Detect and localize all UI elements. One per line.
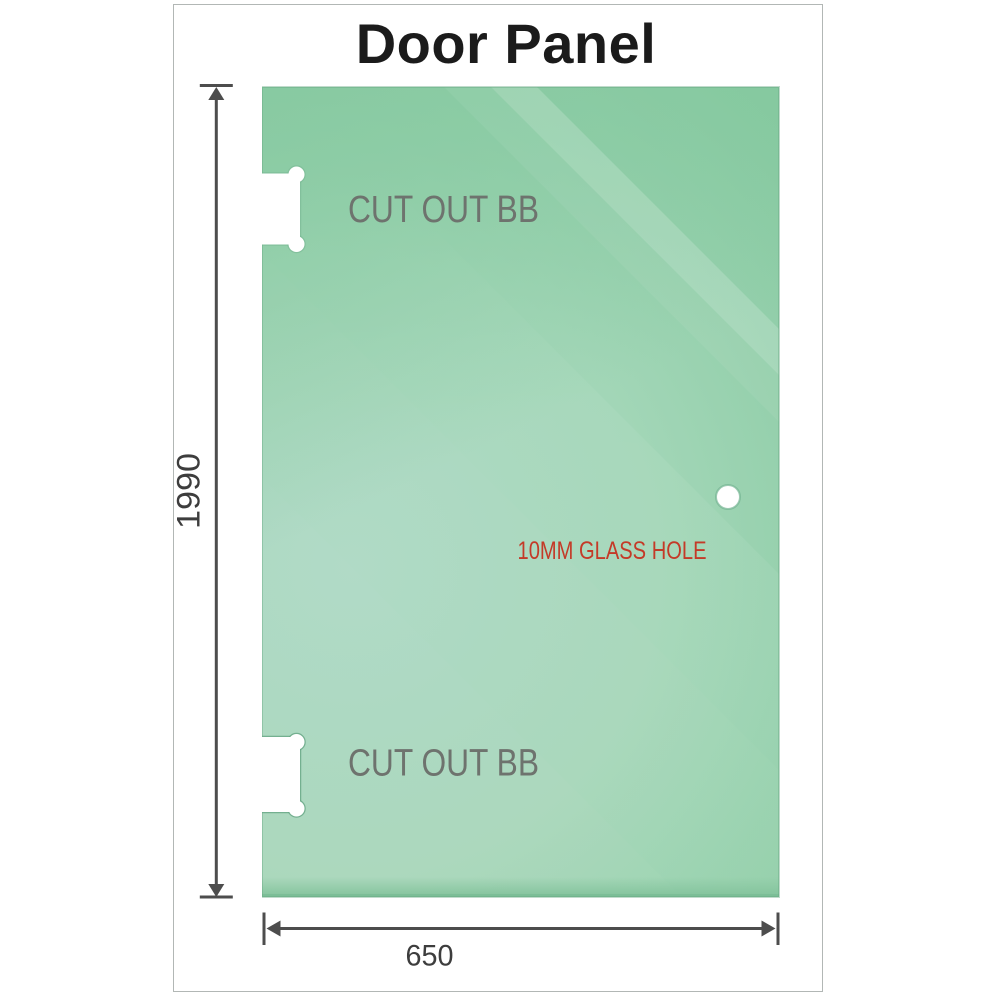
svg-text:CUT OUT BB: CUT OUT BB	[348, 743, 539, 785]
svg-text:CUT OUT BB: CUT OUT BB	[348, 189, 539, 231]
svg-text:10MM GLASS HOLE: 10MM GLASS HOLE	[518, 537, 707, 565]
svg-text:650: 650	[406, 940, 454, 973]
svg-text:1990: 1990	[171, 453, 207, 529]
svg-text:Door Panel: Door Panel	[356, 12, 657, 75]
